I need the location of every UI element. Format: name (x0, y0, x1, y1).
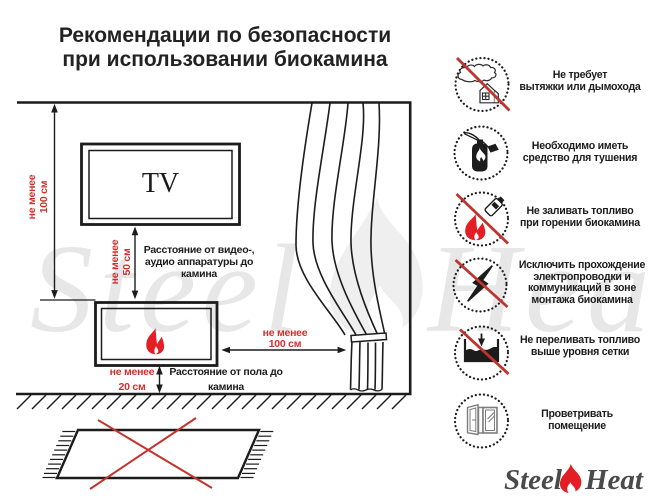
svg-text:TV: TV (142, 168, 179, 199)
